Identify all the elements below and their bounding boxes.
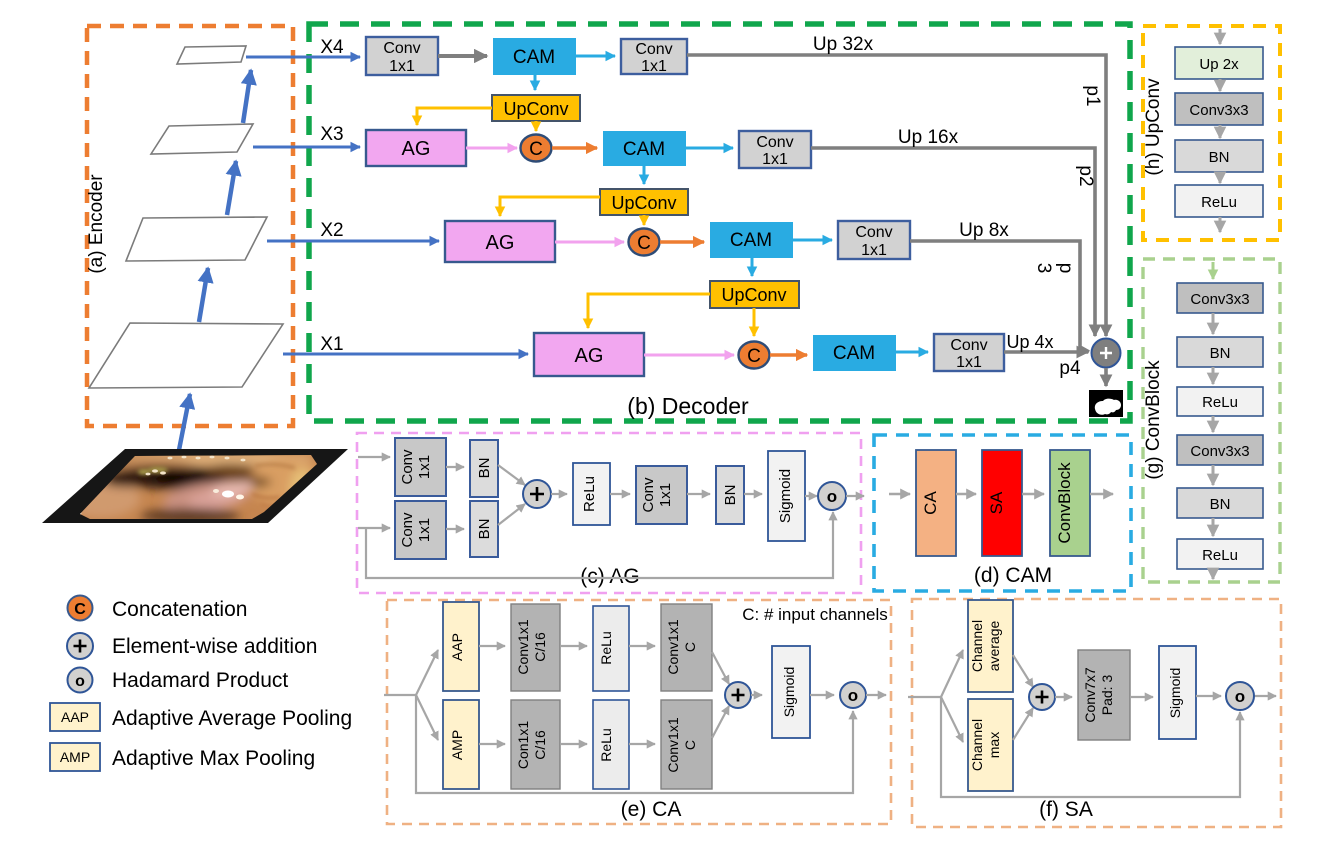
svg-text:1x1: 1x1 [641,58,667,75]
svg-text:Conv: Conv [399,512,416,548]
svg-text:Conv: Conv [640,477,657,513]
svg-text:BN: BN [1210,496,1231,513]
svg-text:BN: BN [476,458,493,479]
svg-text:Concatenation: Concatenation [112,598,247,621]
svg-text:(e) CA: (e) CA [621,798,682,821]
svg-text:Conv: Conv [950,337,987,354]
svg-text:(b) Decoder: (b) Decoder [627,393,749,419]
svg-text:ConvBlock: ConvBlock [1055,462,1074,544]
svg-text:average: average [986,620,1002,671]
svg-text:1x1: 1x1 [416,455,433,479]
svg-text:Conv: Conv [756,134,793,151]
svg-text:C/16: C/16 [532,632,548,662]
svg-text:BN: BN [1209,149,1230,166]
svg-text:Pad: 3: Pad: 3 [1099,675,1115,716]
svg-text:(d) CAM: (d) CAM [974,564,1052,587]
svg-text:Conv7x7: Conv7x7 [1082,667,1098,722]
svg-text:o: o [75,673,85,690]
svg-text:Adaptive Average Pooling: Adaptive Average Pooling [112,707,352,730]
svg-text:Hadamard Product: Hadamard Product [112,669,288,692]
svg-text:UpConv: UpConv [611,193,676,213]
svg-text:CAM: CAM [513,47,555,68]
svg-text:(f) SA: (f) SA [1039,798,1093,821]
svg-text:3: 3 [1033,263,1054,274]
svg-text:Channel: Channel [969,719,985,771]
svg-text:C: C [74,601,86,618]
svg-text:Conv1x1: Conv1x1 [665,619,681,674]
svg-text:BN: BN [476,519,493,540]
svg-text:ReLu: ReLu [1202,547,1238,564]
svg-text:CAM: CAM [833,343,875,364]
svg-text:CAM: CAM [730,230,772,251]
svg-text:C: C [637,233,651,254]
svg-text:max: max [986,732,1002,758]
svg-text:C: C [682,740,698,750]
svg-text:X4: X4 [320,37,344,58]
svg-text:(g) ConvBlock: (g) ConvBlock [1143,360,1164,480]
svg-text:AMP: AMP [449,730,465,760]
svg-text:UpConv: UpConv [721,285,786,305]
svg-text:ReLu: ReLu [581,476,598,512]
svg-text:ReLu: ReLu [598,728,614,761]
svg-text:X2: X2 [320,220,343,241]
svg-text:Conv1x1: Conv1x1 [515,619,531,674]
svg-text:Channel: Channel [969,620,985,672]
svg-text:AG: AG [402,138,431,160]
svg-text:UpConv: UpConv [503,99,568,119]
svg-text:C/16: C/16 [532,730,548,760]
svg-text:AG: AG [575,345,604,367]
svg-text:1x1: 1x1 [416,518,433,542]
svg-text:Conv: Conv [855,224,892,241]
svg-text:BN: BN [722,485,739,506]
svg-text:o: o [1235,687,1245,706]
svg-text:1x1: 1x1 [861,242,887,259]
svg-text:p2: p2 [1075,165,1096,186]
svg-text:Conv1x1: Conv1x1 [665,717,681,772]
svg-text:Adaptive Max Pooling: Adaptive Max Pooling [112,747,315,770]
svg-text:AAP: AAP [449,633,465,661]
svg-text:AG: AG [486,232,515,254]
svg-text:C: C [682,642,698,652]
svg-text:C: # input channels: C: # input channels [742,605,888,624]
svg-text:Up 8x: Up 8x [959,220,1009,241]
svg-text:CA: CA [921,491,940,515]
svg-text:Up 32x: Up 32x [813,34,874,55]
svg-text:(h) UpConv: (h) UpConv [1143,78,1164,176]
svg-text:C: C [529,139,543,160]
svg-text:Up 4x: Up 4x [1006,332,1053,352]
svg-text:Conv3x3: Conv3x3 [1190,443,1249,460]
svg-text:AMP: AMP [60,749,90,765]
svg-text:SA: SA [987,491,1006,514]
svg-text:p1: p1 [1082,85,1103,106]
svg-text:Sigmoid: Sigmoid [1167,668,1183,719]
svg-text:Conv: Conv [383,40,420,57]
svg-text:Up 2x: Up 2x [1199,56,1239,73]
svg-text:1x1: 1x1 [389,58,415,75]
svg-text:Element-wise addition: Element-wise addition [112,635,317,658]
svg-text:Conv: Conv [399,449,416,485]
svg-text:ReLu: ReLu [1202,394,1238,411]
svg-text:Conv: Conv [635,41,672,58]
svg-text:Sigmoid: Sigmoid [777,469,794,523]
svg-text:ReLu: ReLu [1201,194,1237,211]
svg-text:1x1: 1x1 [762,151,788,168]
svg-text:p4: p4 [1059,358,1081,379]
svg-text:ReLu: ReLu [598,631,614,664]
svg-text:AAP: AAP [61,709,89,725]
svg-text:Up 16x: Up 16x [898,127,959,148]
svg-text:X1: X1 [320,334,343,355]
svg-text:C: C [747,346,761,367]
svg-text:BN: BN [1210,345,1231,362]
svg-text:(c) AG: (c) AG [580,565,640,588]
svg-text:Conv3x3: Conv3x3 [1189,102,1248,119]
svg-text:o: o [827,487,837,506]
svg-text:o: o [848,686,858,705]
svg-text:CAM: CAM [623,139,665,160]
svg-text:1x1: 1x1 [657,483,674,507]
svg-text:p: p [1055,263,1076,274]
svg-text:X3: X3 [320,124,343,145]
svg-text:Con1x1: Con1x1 [515,721,531,769]
svg-text:1x1: 1x1 [956,354,982,371]
svg-text:Sigmoid: Sigmoid [781,667,797,718]
svg-text:(a) Encoder: (a) Encoder [86,174,107,274]
svg-text:Conv3x3: Conv3x3 [1190,291,1249,308]
